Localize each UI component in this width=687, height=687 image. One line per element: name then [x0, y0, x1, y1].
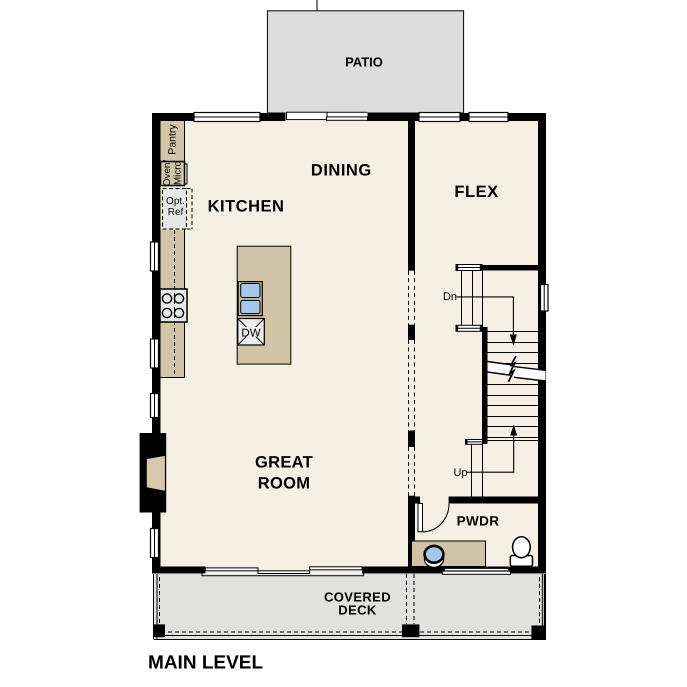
- svg-text:PWDR: PWDR: [457, 514, 500, 529]
- svg-text:Opt.: Opt.: [166, 196, 185, 207]
- svg-text:DECK: DECK: [338, 603, 377, 618]
- svg-text:DW: DW: [241, 328, 260, 340]
- svg-text:MAIN LEVEL: MAIN LEVEL: [148, 653, 263, 674]
- svg-text:Micro: Micro: [172, 160, 183, 184]
- svg-text:Dn: Dn: [443, 291, 457, 303]
- svg-text:Pantry: Pantry: [167, 124, 179, 155]
- svg-text:KITCHEN: KITCHEN: [208, 198, 285, 216]
- svg-text:Up: Up: [453, 467, 467, 479]
- svg-text:Oven/: Oven/: [162, 160, 173, 186]
- svg-text:PATIO: PATIO: [345, 55, 383, 70]
- svg-text:GREAT: GREAT: [255, 454, 313, 472]
- svg-text:FLEX: FLEX: [454, 183, 498, 201]
- svg-text:DINING: DINING: [311, 162, 372, 180]
- svg-text:ROOM: ROOM: [258, 475, 311, 493]
- svg-text:Ref: Ref: [168, 207, 184, 218]
